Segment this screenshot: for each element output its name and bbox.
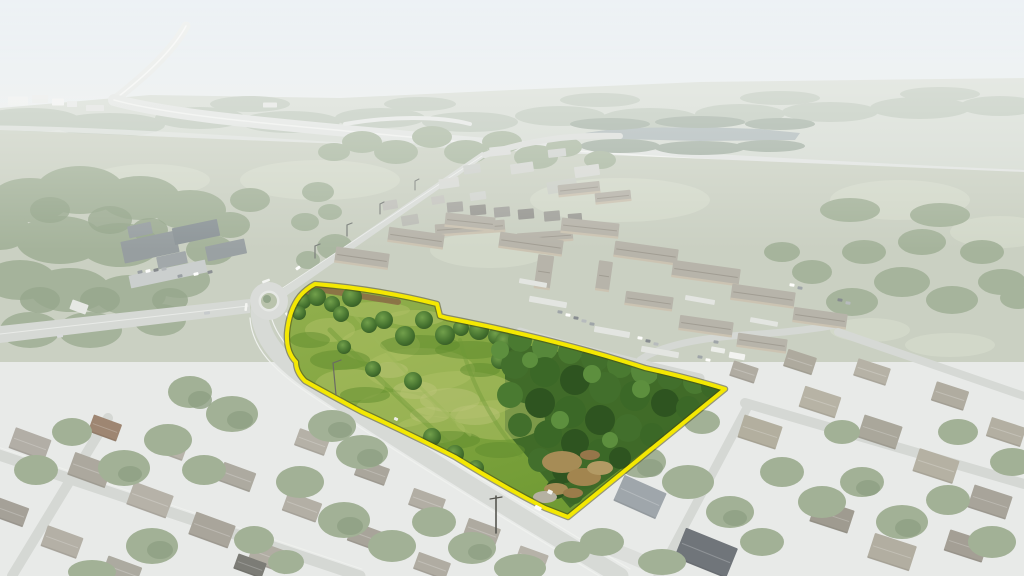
neighborhood-trees-shape <box>662 465 714 499</box>
neighborhood-trees-shade-shape <box>147 541 173 559</box>
neighborhood-trees-shade-shape <box>337 517 363 535</box>
woods-highlights-shape <box>491 341 509 359</box>
houses-bottom-right-shape <box>853 358 891 386</box>
parcel-trees-shape <box>337 340 351 354</box>
parcel-trees-shape <box>361 317 377 333</box>
houses-bottom-left-shape <box>188 512 236 549</box>
dirt-patches-southeast-shape <box>580 450 600 460</box>
woods-canopy-shape <box>497 382 523 408</box>
houses-bottom-right-shape <box>986 417 1024 447</box>
right-tree-masses-shape <box>826 288 878 316</box>
houses-bottom-left-shape <box>126 482 174 519</box>
neighborhood-trees-shape <box>938 419 978 445</box>
roundabout-shape <box>263 295 271 303</box>
neighborhood-trees-shade-shape <box>723 510 747 526</box>
neighborhood-trees-shade-shape <box>856 480 880 496</box>
neighborhood-trees-shade-shape <box>895 519 921 537</box>
field-variation-shape <box>905 333 995 357</box>
neighborhood-trees-shape <box>412 507 456 537</box>
houses-bottom-right-shape <box>729 360 759 384</box>
neighborhood-trees-shape <box>968 526 1016 558</box>
neighborhood-trees-shape <box>234 526 274 554</box>
neighborhood-trees-shape <box>926 485 970 515</box>
road-vehicles-shape <box>57 334 63 338</box>
parcel-trees-shape <box>375 311 393 329</box>
right-tree-masses-shape <box>874 267 930 297</box>
neighborhood-trees-shape <box>276 466 324 498</box>
grass-dark-streaks-shape <box>290 332 330 348</box>
right-tree-masses-shape <box>926 286 978 314</box>
neighborhood-trees-shade-shape <box>227 411 253 429</box>
aerial-drone-photo <box>0 0 1024 576</box>
parcel-trees-shape <box>404 372 422 390</box>
neighborhood-trees-shape <box>554 541 590 563</box>
houses-bottom-right-shape <box>674 528 738 576</box>
neighborhood-trees-shape <box>268 550 304 574</box>
parcel-trees-shape <box>435 325 455 345</box>
woods-highlights-shape <box>551 411 569 429</box>
parcel-trees-shape <box>395 326 415 346</box>
neighborhood-trees-shape <box>144 424 192 456</box>
left-woodland-shade-shape <box>20 287 60 313</box>
neighborhood-trees-shape <box>824 420 860 444</box>
parcel-trees-shape <box>365 361 381 377</box>
dirt-patches-southeast-shape <box>563 488 583 498</box>
parcel-trees-shape <box>415 311 433 329</box>
parcel-trees-shape <box>333 306 349 322</box>
woods-canopy-shape <box>585 405 615 435</box>
right-tree-masses-shape <box>792 260 832 284</box>
houses-bottom-right-shape <box>737 414 783 449</box>
houses-bottom-right-shape <box>798 386 841 419</box>
houses-bottom-left-shape <box>0 497 29 528</box>
houses-bottom-right-shape <box>857 414 903 449</box>
neighborhood-trees-shade-shape <box>468 544 492 560</box>
top-haze <box>0 0 1024 250</box>
woods-canopy-shape <box>525 388 555 418</box>
woods-highlights-shape <box>583 365 601 383</box>
road-vehicles-shape <box>204 311 210 315</box>
neighborhood-trees-shade-shape <box>188 391 212 409</box>
roundabout <box>250 282 288 320</box>
houses-bottom-right-shape <box>912 448 959 484</box>
neighborhood-trees-shade-shape <box>118 466 142 482</box>
neighborhood-trees-shape <box>760 457 804 487</box>
houses-bottom-right-shape <box>613 475 667 520</box>
neighborhood-trees-shape <box>798 486 846 518</box>
houses-bottom-left-shape <box>413 552 451 576</box>
neighborhood-trees-shape <box>368 530 416 562</box>
houses-bottom-right-shape <box>867 533 917 572</box>
dirt-patches-southeast-shape <box>587 461 613 475</box>
aerial-photo-stage <box>0 0 1024 576</box>
woods-canopy-shape <box>508 413 532 437</box>
woods-highlights-shape <box>602 432 618 448</box>
neighborhood-trees-shape <box>14 455 58 485</box>
parcel-trees-shape <box>308 288 326 306</box>
neighborhood-trees-shade-shape <box>328 422 352 438</box>
houses-bottom-left-shape-roof <box>0 497 29 527</box>
woods-highlights-shape <box>522 352 538 368</box>
woods-canopy-shape <box>651 389 679 417</box>
neighborhood-trees-shade-shape <box>357 449 383 467</box>
neighborhood-trees-shape <box>182 455 226 485</box>
neighborhood-trees-shape <box>740 528 784 556</box>
houses-bottom-right-shape <box>967 484 1013 519</box>
houses-bottom-left-shape-roof <box>413 552 451 576</box>
neighborhood-trees-shape <box>638 549 686 575</box>
houses-bottom-right-shape <box>931 381 970 411</box>
woods-canopy-shape <box>614 414 642 442</box>
woods-highlights-shape <box>632 380 650 398</box>
neighborhood-trees-shape <box>52 418 92 446</box>
top-haze-shape <box>0 0 1024 250</box>
houses-bottom-left-shape <box>40 525 83 559</box>
